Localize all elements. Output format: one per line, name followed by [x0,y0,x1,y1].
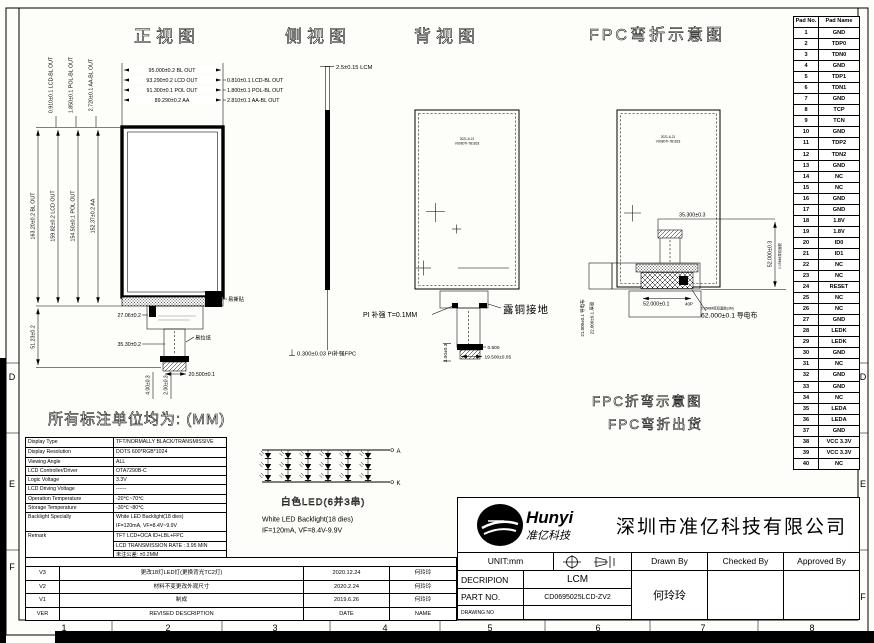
pin-name: GND [819,205,859,215]
led-die-icon [360,451,372,459]
pin-row: 33GND [794,381,859,392]
pin-number: 29 [794,337,819,347]
units-note: 所有标注单位均为: (MM) [48,411,225,428]
pin-name: LEDK [819,326,859,336]
dim-label: 40P [685,302,693,307]
pin-row: 7GND [794,93,859,104]
pin-number: 25 [794,293,819,303]
led-die-icon [300,451,312,459]
pin-number: 9 [794,116,819,126]
dim-label: 1.800±0.1 POL-BL OUT [227,88,284,94]
pin-row: 22NC [794,259,859,270]
fpc-fold-tab [658,230,682,238]
pin-number: 18 [794,216,819,226]
back-view: 背视图 2021-6-21 VS080TI-7B1818 PI 补强 T=0.1… [363,27,549,362]
pin-name: NC [819,293,859,303]
dim-label: 95.000±0.2 BL OUT [149,68,197,74]
pin-number: 39 [794,448,819,458]
spec-value: ALL [114,458,226,466]
spec-value: DOTS 600*RGB*1024 [114,448,226,456]
dim-label: 0.810±0.1 LCD-BL OUT [227,78,284,84]
logo-subtext: 准亿科技 [526,529,572,542]
pin-number: 19 [794,227,819,237]
revision-header: REVISED DESCRIPTION [60,608,304,621]
pin-row: 17GND [794,204,859,215]
title-block-header: Hunyi 准亿科技 深圳市准亿科技有限公司 [458,498,859,553]
dim-label: 20.500±0.1 [189,372,216,378]
spec-row: Operation Temperature-20℃~70℃ [26,494,226,503]
note-label: FPC折弯示意图 [592,393,703,409]
revision-header: DATE [304,608,390,621]
dim-label: 2.00±0.3 [164,375,170,395]
spec-value: -30℃~80℃ [114,504,226,512]
pin-name: GND [819,194,859,204]
pin-name: NC [819,459,859,469]
revision-name: 何玲玲 [390,567,456,580]
pin-number: 11 [794,138,819,148]
pin-name: NC [819,271,859,281]
led-die-icon [320,451,332,459]
dim-label: 4.00±0.3 [146,375,152,395]
zone-letter: D [9,372,16,382]
pin-row: 6TDN1 [794,82,859,93]
spec-label: Display Resolution [26,448,114,456]
pin-name: VCC 3.3V [819,448,859,458]
dim-label: 91.300±0.1 POL OUT [147,88,199,94]
revision-date: 2020.2.24 [304,581,390,594]
spec-row: LCD Controller/DriverOTA7290B-C [26,466,226,475]
spec-value: TFT LCD+OCA ID+LBL+FPC [114,532,226,541]
pin-row: 25NC [794,292,859,303]
revision-header: VER [26,608,60,621]
spec-value: IF=120mA, VF=8.4V~9.9V [114,522,226,531]
spec-row: Backlight Specially White LED Backlight(… [26,512,226,531]
pin-row: 23NC [794,270,859,281]
pin-row: 13GND [794,160,859,171]
pin-name: 1.8V [819,216,859,226]
dim-label: 159.82±0.2 LCD OUT [51,190,57,242]
annotation-label: PI 补强 T=0.1MM [363,310,417,319]
pin-row: 5TDP1 [794,71,859,82]
pin-name: 1.8V [819,227,859,237]
dim-label: 163.20±0.2 BL OUT [31,192,37,240]
pin-row: 11TDP2 [794,137,859,148]
led-spec-line: White LED Backlight(18 dies) [262,517,353,524]
revision-name: 何玲玲 [390,581,456,594]
pin-number: 35 [794,404,819,414]
revision-date: 2019.6.26 [304,594,390,607]
pin-row: 15NC [794,182,859,193]
company-name: 深圳市准亿科技有限公司 [604,512,859,539]
pin-row: 21ID1 [794,248,859,259]
pin-number: 5 [794,72,819,82]
spec-label: LCD Controller/Driver [26,467,114,475]
spec-row: Viewing AngleALL [26,457,226,466]
spec-value: 3.3V [114,476,226,484]
annotation-label: 0.05MM厚双面胶(3M) [701,306,734,311]
dim-label: 2.5±0.15 LCM [336,65,373,71]
pin-row: 10GND [794,126,859,137]
terminal-label: A [397,449,401,455]
front-view: 正视图 95.000±0.2 BL OUT 93.290±0.2 LCD OUT… [31,27,285,428]
pin-row: 3TDN0 [794,49,859,60]
pin-row: 32GND [794,369,859,380]
dim-label: 52.000±0.3 [768,241,774,268]
scan-artifact-left [0,358,6,643]
revision-empty-row [26,558,456,566]
pin-name: TDP2 [819,138,859,148]
chip-marking: 2021-6-21 [661,135,676,139]
pin-name: GND [819,161,859,171]
pin-row: 1GND [794,27,859,38]
note-label: FPC弯折出货 [608,416,703,432]
zone-letter: F [9,562,15,572]
pin-number: 34 [794,393,819,403]
terminal-label: K [397,481,401,487]
pin-row: 181.8V [794,215,859,226]
dim-label: 52.000±0.1 [643,302,670,308]
pin-name: GND [819,382,859,392]
spec-row: Storage Temperature-30℃~80℃ [26,503,226,512]
pin-number: 1 [794,28,819,38]
title-block: Hunyi 准亿科技 深圳市准亿科技有限公司 UNIT:mm [457,497,860,620]
pin-row: 191.8V [794,226,859,237]
pin-row: 35LEDA [794,403,859,414]
zone-letter: F [860,592,866,602]
spec-value: ------ [114,485,226,493]
dim-label: 152.37±0.2 AA [91,198,97,233]
revision-row: V3 更改18灯LED灯(更换背光TC2灯) 2020.12.24 何玲玲 [26,566,456,580]
annotation-label: 62.000±0.1 导电布 [701,311,757,320]
pin-row: 27GND [794,314,859,325]
chip-marking: VS080TI-7B1818 [455,142,480,146]
spec-value: OTA7290B-C [114,467,226,475]
pin-row: 28LEDK [794,325,859,336]
spec-value: -20℃~70℃ [114,495,226,503]
revision-header: NAME [390,608,456,621]
pin-number: 6 [794,83,819,93]
pin-row: 31NC [794,358,859,369]
pin-number: 10 [794,127,819,137]
pin-name: GND [819,348,859,358]
view-title: 背视图 [414,27,480,46]
projection-symbol-icon [554,553,631,570]
drawing-no-label: DRAWING NO [458,606,524,619]
dim-label: 0.500 [488,345,500,351]
dim-label: 35.300±0.3 [679,212,706,218]
unit-label: UNIT:mm [458,553,554,570]
pin-name: TDN0 [819,50,859,60]
pin-number: 4 [794,61,819,71]
revision-ver: V1 [26,594,60,607]
pin-name: NC [819,359,859,369]
pin-name: NC [819,304,859,314]
pin-number: 2 [794,39,819,49]
pin-number: 22 [794,260,819,270]
pin-number: 28 [794,326,819,336]
spec-row: Display TypeTFT/NORMALLY BLACK/TRANSMISS… [26,438,226,447]
lcm-drawing-sheet: D E F D E F 1 2 3 4 5 6 7 8 正视图 95.000±0… [0,0,874,643]
spec-label: Backlight Specially [26,513,114,531]
spec-value: LCD TRANSMISSION RATE : 3.95 MIN [114,541,226,550]
dim-label: 51.23±0.2 [31,325,37,349]
pin-number: 12 [794,150,819,160]
dim-label: 89.290±0.2 AA [155,98,190,104]
pin-name: ID0 [819,238,859,248]
pin-name: VCC 3.3V [819,437,859,447]
zone-letter: E [860,479,866,489]
approved-by-signature [784,571,859,619]
pin-number: 17 [794,205,819,215]
pin-name: NC [819,260,859,270]
led-die-icon [260,462,272,470]
revision-ver: V3 [26,567,60,580]
dim-label: 2.720±0.1 AA-BL OUT [89,58,95,111]
dim-label: 0.910±0.1 LCD-BL OUT [49,56,55,113]
led-die-icon [300,462,312,470]
pin-number: 21 [794,249,819,259]
pin-number: 27 [794,315,819,325]
pin-number: 33 [794,382,819,392]
pin-number: 32 [794,370,819,380]
pin-number: 31 [794,359,819,369]
pin-name: GND [819,426,859,436]
led-spec-line: IF=120mA, VF=8.4V-9.9V [262,528,342,535]
pin-table-header: Pad No. Pad Name [794,17,859,27]
pin-row: 30GND [794,347,859,358]
led-circuit: A K 白色LED(6并3串) White LED Backlight(18 d… [260,449,401,535]
dim-label: 22.000±0.1 厚胶 [589,301,596,334]
pin-row: 8TCP [794,104,859,115]
pin-col-header: Pad No. [794,17,819,27]
spec-label: Remark [26,532,114,559]
pin-name: ID1 [819,249,859,259]
led-die-icon [320,462,332,470]
chip-marking: VS080TI-7B1818 [656,140,681,144]
revision-ver: V2 [26,581,60,594]
pin-row: 39VCC 3.3V [794,447,859,458]
pin-name: TCP [819,105,859,115]
spec-table: Display TypeTFT/NORMALLY BLACK/TRANSMISS… [25,437,227,560]
pin-name: LEDA [819,415,859,425]
dim-label: 3.00±0.3 [443,343,449,362]
spec-label: Display Type [26,438,114,447]
pin-number: 13 [794,161,819,171]
revision-table: V3 更改18灯LED灯(更换背光TC2灯) 2020.12.24 何玲玲 V2… [25,557,457,621]
led-die-icon [260,451,272,459]
pin-number: 36 [794,415,819,425]
revision-desc: 制成 [60,594,304,607]
pin-row: 14NC [794,171,859,182]
spec-row: Remark TFT LCD+OCA ID+LBL+FPCLCD TRANSMI… [26,531,226,559]
led-die-icon [280,473,292,481]
pin-name: LEDA [819,404,859,414]
led-die-icon [280,462,292,470]
approved-by-label: Approved By [784,553,859,571]
pin-number: 16 [794,194,819,204]
pin-name: GND [819,127,859,137]
pin-number: 24 [794,282,819,292]
pin-number: 26 [794,304,819,314]
spec-row: LCD Driving Voltage------ [26,484,226,493]
dim-label: 2.810±0.1 AA-BL OUT [227,98,280,104]
pin-number: 14 [794,172,819,182]
pin-row: 2TDP0 [794,38,859,49]
pin-name: NC [819,172,859,182]
revision-row: V1 制成 2019.6.26 何玲玲 [26,593,456,607]
pin-name: TDP0 [819,39,859,49]
drawn-by-label: Drawn By [632,553,707,571]
revision-name: 何玲玲 [390,594,456,607]
pin-name: GND [819,315,859,325]
checked-by-signature [708,571,783,619]
pin-row: 38VCC 3.3V [794,436,859,447]
part-no-label: PART NO. [458,589,524,605]
pin-name: GND [819,61,859,71]
led-die-icon [280,451,292,459]
pin-row: 29LEDK [794,336,859,347]
pin-name: TCN [819,116,859,126]
dim-label: 93.290±0.2 LCD OUT [146,78,198,84]
led-die-icon [340,473,352,481]
pin-name: NC [819,393,859,403]
pin-name: NC [819,183,859,193]
annotation-label: 露铜接地 [503,303,549,316]
led-die-icon [340,462,352,470]
dim-label: 154.50±0.1 POL OUT [71,190,77,242]
description-label: DECRIPION [458,571,524,588]
side-view: 侧视图 2.5±0.15 LCM 0.300±0.03 PI补强FPC [285,27,373,358]
checked-by-label: Checked By [708,553,783,571]
pin-row: 4GND [794,60,859,71]
pin-row: 20ID0 [794,237,859,248]
lcd-module-outline [122,127,223,297]
spec-value: White LED Backlight(18 dies) [114,513,226,522]
drawn-by-signature: 何玲玲 [632,571,707,619]
led-die-icon [260,473,272,481]
part-no-value: CD0695025LCD-ZV2 [524,594,631,601]
pin-number: 38 [794,437,819,447]
led-caption: 白色LED(6并3串) [281,496,365,508]
pin-name: TDP1 [819,72,859,82]
led-die-icon [360,473,372,481]
side-profile-bar [325,110,330,290]
pin-number: 15 [794,183,819,193]
revision-header-row: VER REVISED DESCRIPTION DATE NAME [26,607,456,621]
dim-label: 35.30±0.2 [117,342,141,348]
pin-row: 24RESET [794,281,859,292]
pin-name: GND [819,28,859,38]
view-title: 侧视图 [285,27,351,46]
tear-sticker [205,291,222,307]
led-die-icon [340,451,352,459]
dim-label: 19.500±0.05 [485,355,512,361]
dim-label: 21.000±0.1 导电布 [579,299,586,337]
pin-number: 40 [794,459,819,469]
company-logo: Hunyi 准亿科技 [474,501,604,549]
spec-label: Storage Temperature [26,504,114,512]
pin-name: TDN2 [819,150,859,160]
chip-marking: 2021-6-21 [460,137,475,141]
pin-row: 40NC [794,458,859,469]
revision-row: V2 材料不变更改外观尺寸 2020.2.24 何玲玲 [26,580,456,594]
zone-letter: E [9,479,15,489]
description-value: LCM [524,574,631,585]
led-die-icon [300,473,312,481]
spec-label: Operation Temperature [26,495,114,503]
dim-label: 1.850±0.1 POL-BL OUT [69,56,75,113]
pin-row: 9TCN [794,115,859,126]
fpc-bend-view: FPC弯折示意图 2021-6-21 VS080TI-7B1818 35.300… [579,25,786,432]
dim-label: 27.06±0.2 [117,313,141,319]
dim-label: 0.300±0.03 PI补强FPC [297,350,356,358]
pin-row: 16GND [794,193,859,204]
annotation-label: 易拉纸 [195,334,212,342]
pin-name: LEDK [819,337,859,347]
pin-name: GND [819,370,859,380]
pin-number: 20 [794,238,819,248]
led-die-icon [360,462,372,470]
spec-label: Viewing Angle [26,458,114,466]
pin-row: 37GND [794,425,859,436]
pin-number: 30 [794,348,819,358]
pin-number: 23 [794,271,819,281]
pin-row: 36LEDA [794,414,859,425]
annotation-label: 0.05MM厚双面胶 [777,242,782,268]
pin-name: TDN1 [819,83,859,93]
pin-number: 7 [794,94,819,104]
view-title: FPC弯折示意图 [589,25,725,44]
spec-row: Display ResolutionDOTS 600*RGB*1024 [26,447,226,456]
led-die-icon [320,473,332,481]
revision-desc: 材料不变更改外观尺寸 [60,581,304,594]
pin-name: RESET [819,282,859,292]
scan-artifact-bottom [55,631,874,643]
annotation-label: 易撕贴 [228,295,245,303]
spec-value: TFT/NORMALLY BLACK/TRANSMISSIVE [114,438,226,447]
pin-row: 34NC [794,392,859,403]
zone-letter: D [860,372,867,382]
pin-number: 37 [794,426,819,436]
pin-number: 3 [794,50,819,60]
view-title: 正视图 [134,27,200,46]
pin-table: Pad No. Pad Name 1GND2TDP03TDN04GND5TDP1… [793,16,860,470]
spec-label: LCD Driving Voltage [26,485,114,493]
logo-text: Hunyi [526,508,575,527]
spec-label: Logic Voltage [26,476,114,484]
pin-row: 12TDN2 [794,149,859,160]
pin-name: GND [819,94,859,104]
revision-date: 2020.12.24 [304,567,390,580]
pin-col-header: Pad Name [819,17,859,27]
pin-number: 8 [794,105,819,115]
revision-desc: 更改18灯LED灯(更换背光TC2灯) [60,567,304,580]
spec-row: Logic Voltage3.3V [26,475,226,484]
pin-row: 26NC [794,303,859,314]
